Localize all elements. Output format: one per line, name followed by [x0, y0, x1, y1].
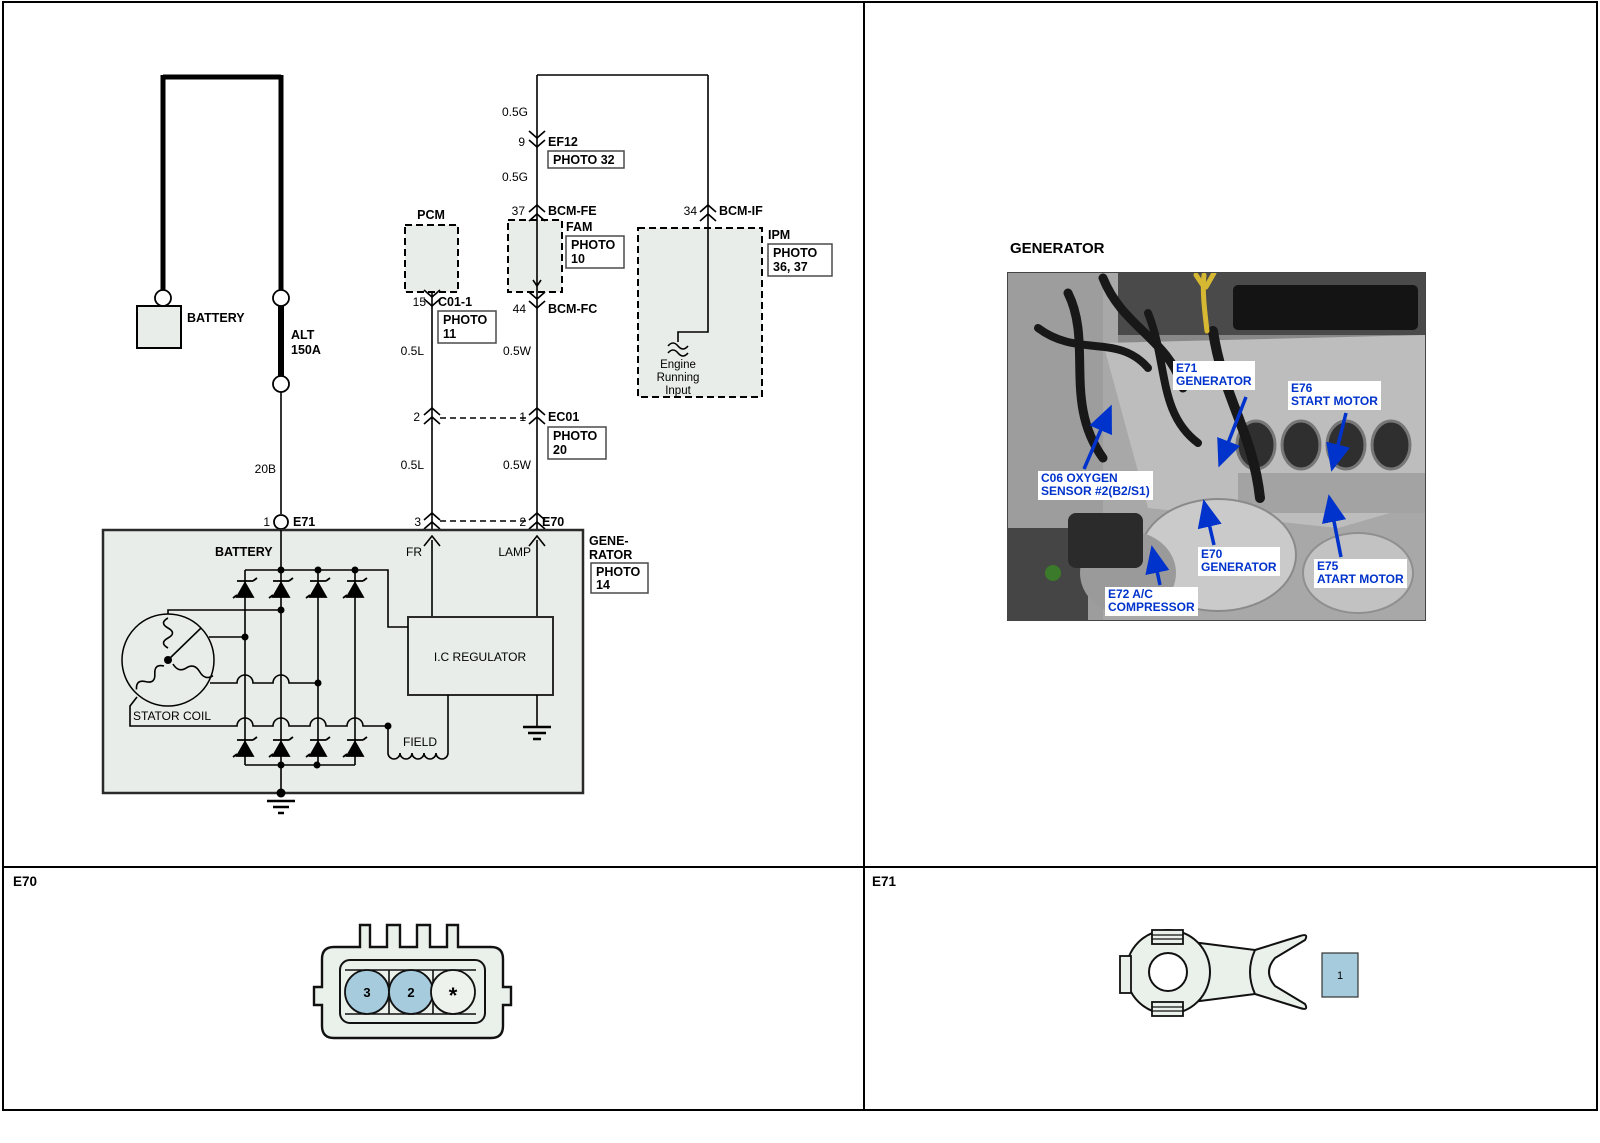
- wire-label-05g-2: 0.5G: [502, 170, 528, 184]
- pin-44: 44: [513, 302, 527, 316]
- callout-c06-oxygen-sensor: C06 OXYGENSENSOR #2(B2/S1): [1038, 471, 1153, 500]
- gen-label-2: RATOR: [589, 548, 632, 562]
- photo-14-word: PHOTO: [596, 565, 640, 579]
- e71-fork: [1250, 935, 1306, 1009]
- photo-10-word: PHOTO: [571, 238, 615, 252]
- generator-block: BATTERY FR LAMP I.C REGULATOR: [103, 530, 583, 813]
- pin-9: 9: [518, 135, 525, 149]
- photo-11-num: 11: [443, 327, 456, 341]
- callout-e75-start-motor: E75ATART MOTOR: [1314, 559, 1407, 588]
- e70-pin-star-label: *: [449, 983, 458, 1008]
- gen-fr-terminal: FR: [406, 545, 422, 559]
- e70-pin-2-label: 2: [407, 985, 414, 1000]
- battery-label: BATTERY: [187, 311, 245, 325]
- e70-pin-3-label: 3: [363, 985, 370, 1000]
- fam-box: [508, 220, 562, 292]
- pin-34: 34: [684, 204, 698, 218]
- wire-label-05l-2: 0.5L: [401, 458, 425, 472]
- pcm-label: PCM: [417, 208, 445, 222]
- wiring-diagram: BATTERY ALT 150A 20B 1 E71 0.5G 9 EF12 P…: [0, 0, 864, 866]
- callout-e72-ac-compressor: E72 A/CCOMPRESSOR: [1105, 587, 1198, 616]
- photo-32-label: PHOTO 32: [553, 153, 615, 167]
- pcm-box: [405, 225, 458, 292]
- gen-battery-terminal: BATTERY: [215, 545, 273, 559]
- e71-pin-number: 1: [263, 515, 270, 529]
- wire-label-05l: 0.5L: [401, 344, 425, 358]
- photo-20-word: PHOTO: [553, 429, 597, 443]
- connector-c01-1: C01-1: [438, 295, 472, 309]
- wire-label-05w: 0.5W: [503, 344, 532, 358]
- stator-coil-label: STATOR COIL: [133, 709, 211, 723]
- e71-panel-label: E71: [872, 874, 896, 889]
- pin-3-e70: 3: [414, 515, 421, 529]
- fam-label: FAM: [566, 220, 592, 234]
- e71-terminal-drawing: 1: [1095, 898, 1395, 1023]
- generator-side-label: GENE- RATOR PHOTO 14: [589, 534, 648, 593]
- e70-panel-label: E70: [13, 874, 37, 889]
- engine-running-2: Running: [657, 372, 700, 384]
- pin-2-e70: 2: [519, 515, 526, 529]
- photo-20-num: 20: [553, 443, 567, 457]
- connector-bcm-fe: BCM-FE: [548, 204, 597, 218]
- callout-e71-generator: E71GENERATOR: [1173, 361, 1255, 390]
- engine-running-1: Engine: [660, 359, 696, 371]
- connector-bcm-fc: BCM-FC: [548, 302, 597, 316]
- wire-label-05g: 0.5G: [502, 105, 528, 119]
- fuse-name: ALT: [291, 328, 315, 342]
- fuse-rating: 150A: [291, 343, 321, 357]
- connector-ec01: EC01: [548, 410, 579, 424]
- gen-lamp-terminal: LAMP: [498, 545, 531, 559]
- callout-e76-start-motor: E76START MOTOR: [1288, 381, 1381, 410]
- wire-label-05w-2: 0.5W: [503, 458, 532, 472]
- battery-symbol: [137, 306, 181, 348]
- e71-connector-label: E71: [293, 515, 315, 529]
- generator-photo: E71GENERATOR E76START MOTOR C06 OXYGENSE…: [1007, 272, 1426, 621]
- e71-ring-terminal: [1120, 930, 1306, 1016]
- callout-e70-generator: E70GENERATOR: [1198, 547, 1280, 576]
- e71-pin-1-label: 1: [1337, 970, 1343, 982]
- e71-ring-hole: [1149, 953, 1187, 991]
- engine-running-3: Input: [665, 385, 691, 397]
- pin-37: 37: [512, 204, 526, 218]
- photo-36-37-word: PHOTO: [773, 246, 817, 260]
- gen-label-1: GENE-: [589, 534, 629, 548]
- ipm-label: IPM: [768, 228, 790, 242]
- photo-11-word: PHOTO: [443, 313, 487, 327]
- photo-14-num: 14: [596, 578, 610, 592]
- pin-15: 15: [413, 295, 427, 309]
- pin-2-ec01: 2: [413, 410, 420, 424]
- connector-e70: E70: [542, 515, 564, 529]
- e71-pin-circle: [274, 515, 288, 529]
- connector-ef12: EF12: [548, 135, 578, 149]
- photo-title: GENERATOR: [1010, 240, 1104, 257]
- photo-10-num: 10: [571, 252, 585, 266]
- pin-1-ec01: 1: [519, 410, 526, 424]
- e70-connector-drawing: 3 2 *: [305, 893, 515, 1048]
- connector-bcm-if: BCM-IF: [719, 204, 763, 218]
- battery-harness: BATTERY ALT 150A 20B 1 E71: [137, 75, 321, 529]
- photo-36-37-num: 36, 37: [773, 260, 808, 274]
- field-label: FIELD: [403, 735, 437, 749]
- horizontal-divider: [2, 866, 1596, 868]
- ic-regulator-label: I.C REGULATOR: [434, 650, 527, 664]
- wire-label-20b: 20B: [255, 462, 276, 476]
